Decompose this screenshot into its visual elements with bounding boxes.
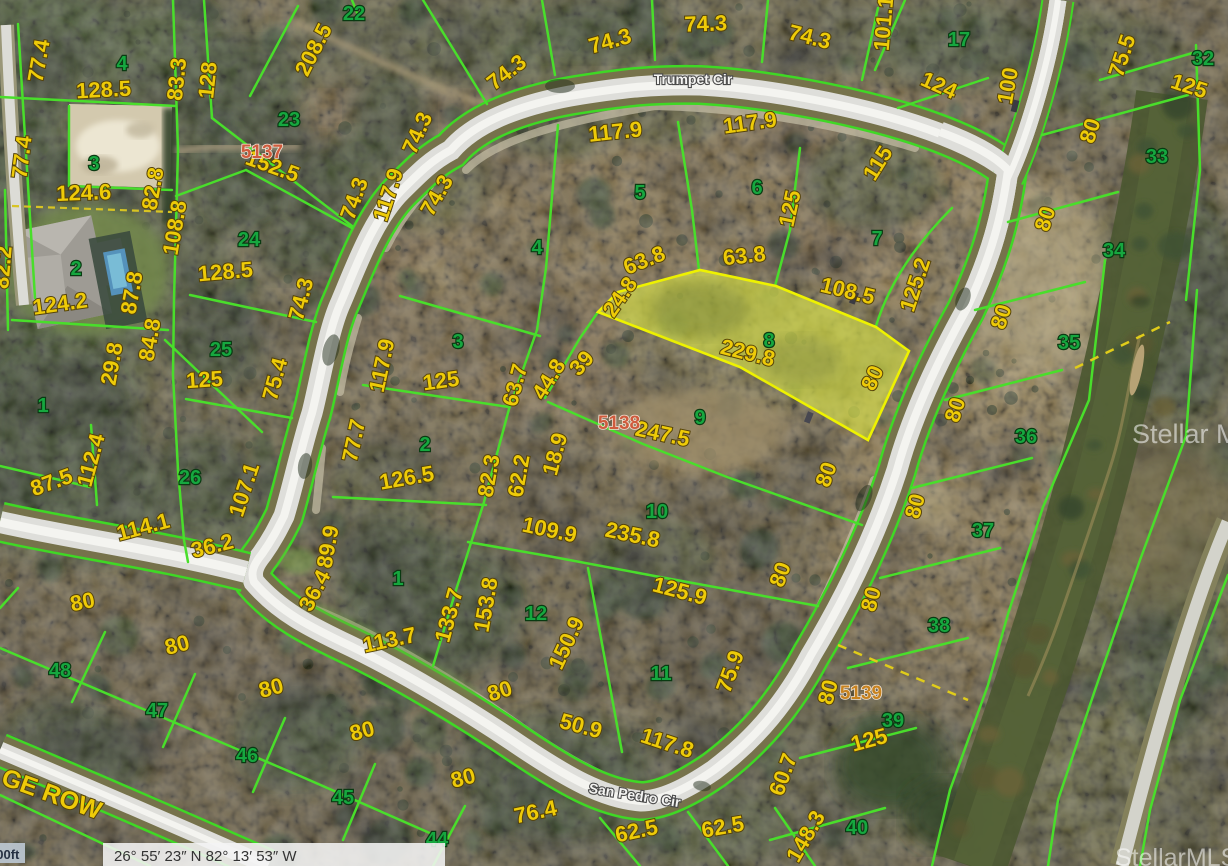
svg-text:6: 6 xyxy=(751,177,762,199)
svg-text:40: 40 xyxy=(846,817,868,839)
svg-text:124.6: 124.6 xyxy=(56,179,112,206)
svg-text:1: 1 xyxy=(392,568,403,590)
svg-text:100ft: 100ft xyxy=(0,847,20,862)
svg-text:7: 7 xyxy=(871,228,882,250)
svg-text:83.3: 83.3 xyxy=(162,57,191,102)
svg-text:48: 48 xyxy=(49,660,71,682)
svg-text:33: 33 xyxy=(1146,146,1168,168)
svg-text:9: 9 xyxy=(694,407,705,429)
svg-text:125: 125 xyxy=(421,366,461,396)
svg-text:32: 32 xyxy=(1192,48,1214,70)
svg-text:17: 17 xyxy=(948,29,970,51)
svg-text:25: 25 xyxy=(210,339,232,361)
svg-text:26° 55′ 23″ N 82° 13′ 53″ W: 26° 55′ 23″ N 82° 13′ 53″ W xyxy=(114,848,297,865)
svg-text:3: 3 xyxy=(88,153,99,175)
svg-text:11: 11 xyxy=(650,663,671,685)
svg-text:34: 34 xyxy=(1103,240,1126,262)
svg-text:22: 22 xyxy=(343,3,365,25)
svg-text:10: 10 xyxy=(646,501,668,523)
svg-text:37: 37 xyxy=(972,520,994,542)
svg-text:4: 4 xyxy=(531,237,543,259)
svg-text:63.8: 63.8 xyxy=(722,241,767,270)
svg-text:128.5: 128.5 xyxy=(75,76,131,104)
svg-text:5139: 5139 xyxy=(840,683,882,704)
svg-text:26: 26 xyxy=(179,467,201,489)
svg-text:StellarMLS: StellarMLS xyxy=(1115,844,1228,866)
svg-text:74.3: 74.3 xyxy=(684,10,728,36)
svg-text:128: 128 xyxy=(193,61,222,100)
svg-text:80: 80 xyxy=(68,587,97,617)
svg-text:12: 12 xyxy=(525,603,547,625)
svg-text:35: 35 xyxy=(1058,332,1080,354)
svg-text:128.5: 128.5 xyxy=(197,257,254,287)
svg-text:8: 8 xyxy=(763,330,774,352)
svg-text:24: 24 xyxy=(238,229,261,251)
svg-text:101.1: 101.1 xyxy=(869,0,899,52)
svg-text:23: 23 xyxy=(278,109,300,131)
svg-text:38: 38 xyxy=(928,615,950,637)
svg-text:5137: 5137 xyxy=(241,142,283,163)
svg-text:47: 47 xyxy=(146,700,168,722)
svg-text:4: 4 xyxy=(116,53,128,75)
svg-text:Trumpet Cir: Trumpet Cir xyxy=(654,71,733,87)
svg-text:77.4: 77.4 xyxy=(7,134,37,180)
svg-text:1: 1 xyxy=(37,395,48,417)
svg-text:2: 2 xyxy=(419,434,430,456)
svg-text:5: 5 xyxy=(634,182,645,204)
svg-text:125: 125 xyxy=(185,366,223,394)
svg-text:36: 36 xyxy=(1015,426,1037,448)
svg-text:5138: 5138 xyxy=(598,413,640,434)
svg-text:45: 45 xyxy=(332,787,354,809)
svg-text:3: 3 xyxy=(452,331,463,353)
svg-text:2: 2 xyxy=(70,258,81,280)
svg-text:Stellar MLS: Stellar MLS xyxy=(1132,419,1228,449)
svg-text:46: 46 xyxy=(236,745,258,767)
svg-text:39: 39 xyxy=(882,710,904,732)
